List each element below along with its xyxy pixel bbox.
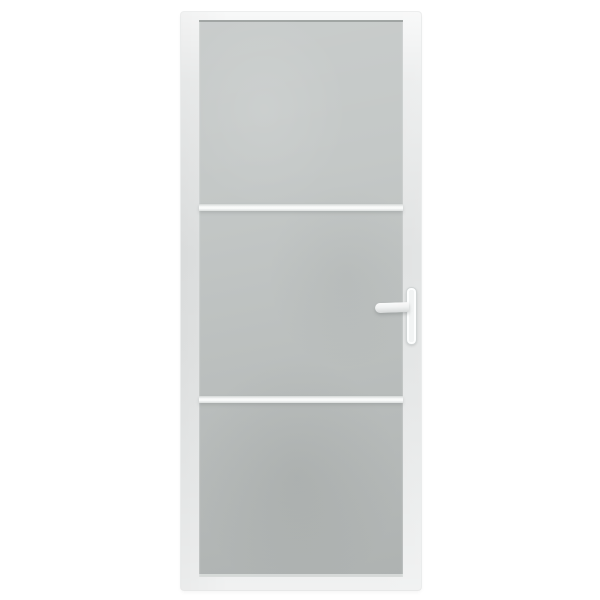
glass-texture — [199, 20, 403, 577]
glass-divider-bar-2 — [199, 396, 403, 403]
door-lever-handle — [375, 302, 409, 313]
product-photo-canvas — [0, 0, 600, 600]
frosted-glass — [199, 20, 403, 577]
glass-divider-bar-1 — [199, 204, 403, 211]
handle-backplate — [406, 287, 417, 345]
door — [181, 12, 421, 590]
